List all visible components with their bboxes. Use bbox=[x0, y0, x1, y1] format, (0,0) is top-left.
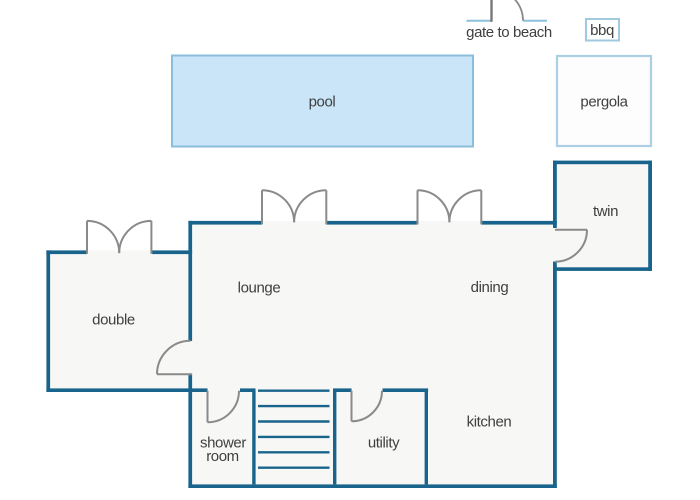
svg-text:twin: twin bbox=[593, 203, 618, 220]
svg-text:gate to beach: gate to beach bbox=[466, 24, 552, 41]
svg-text:bbq: bbq bbox=[590, 22, 614, 39]
svg-text:pergola: pergola bbox=[580, 94, 628, 111]
svg-text:dining: dining bbox=[471, 279, 509, 296]
svg-text:room: room bbox=[206, 448, 239, 465]
svg-text:double: double bbox=[92, 312, 135, 329]
svg-text:utility: utility bbox=[368, 435, 400, 452]
svg-text:kitchen: kitchen bbox=[467, 414, 512, 431]
svg-text:lounge: lounge bbox=[238, 280, 281, 297]
svg-text:pool: pool bbox=[309, 93, 336, 110]
